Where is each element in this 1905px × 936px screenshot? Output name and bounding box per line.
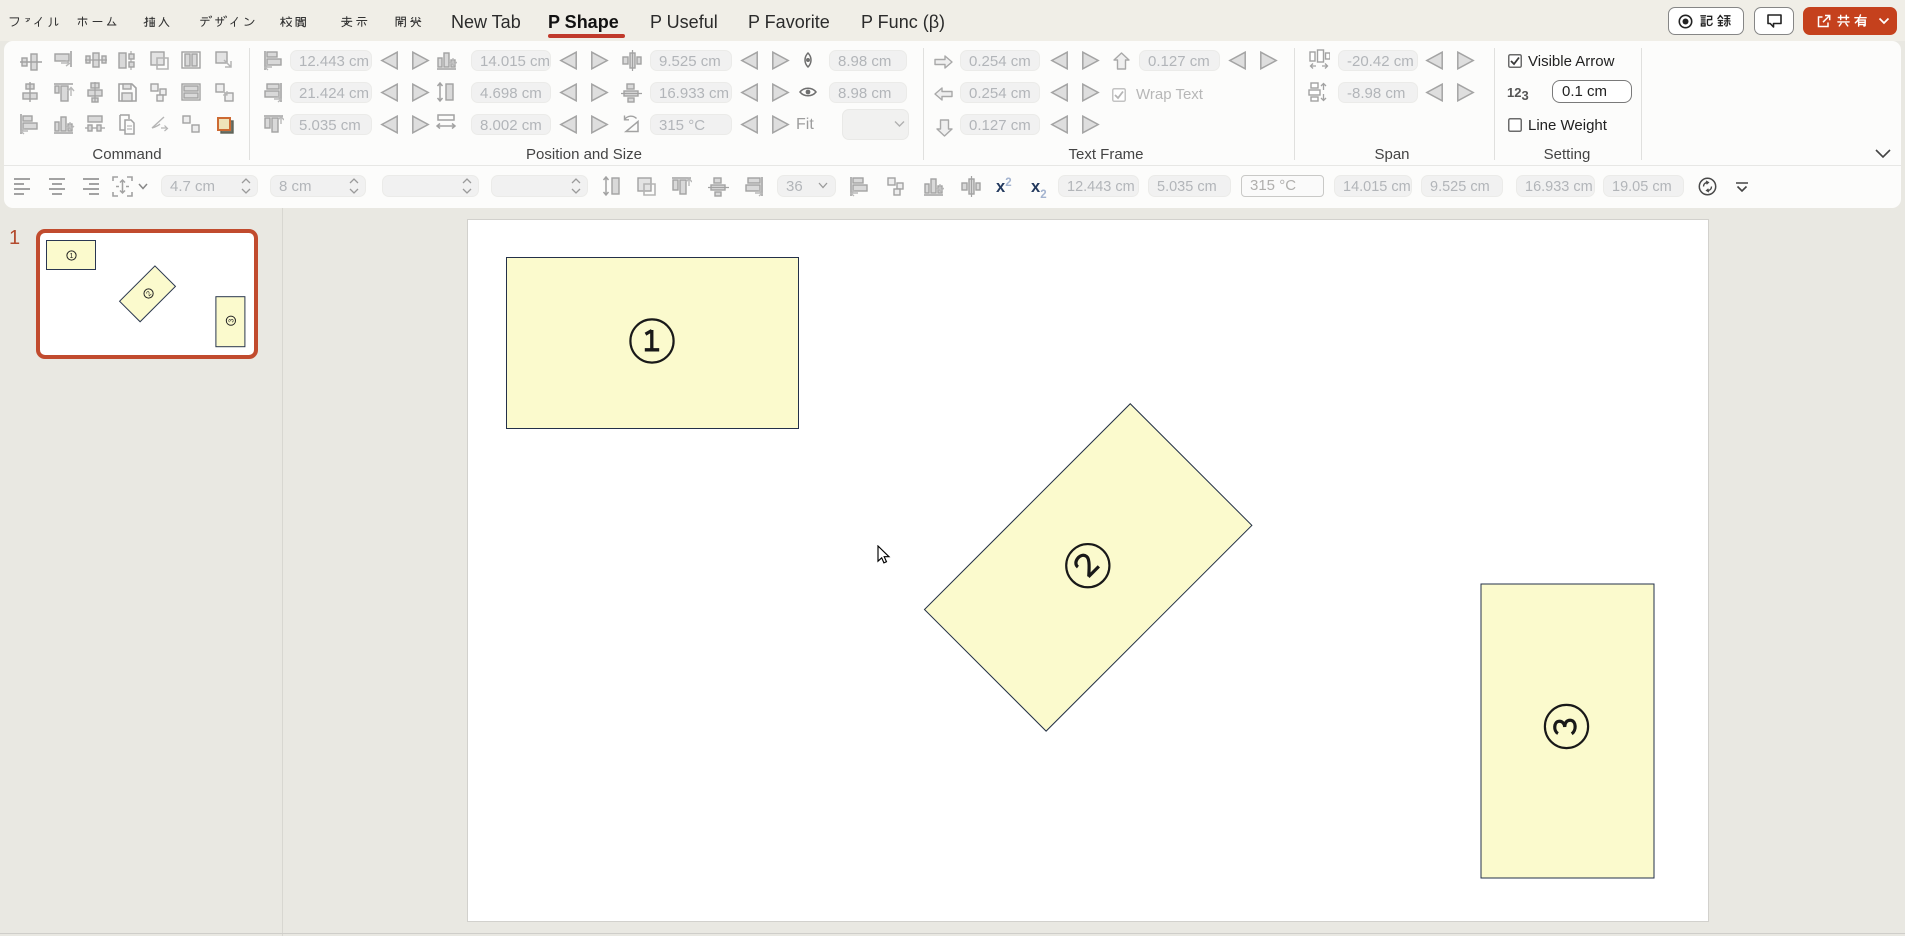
svg-text:3: 3	[228, 319, 235, 323]
svg-text:1: 1	[70, 253, 74, 260]
